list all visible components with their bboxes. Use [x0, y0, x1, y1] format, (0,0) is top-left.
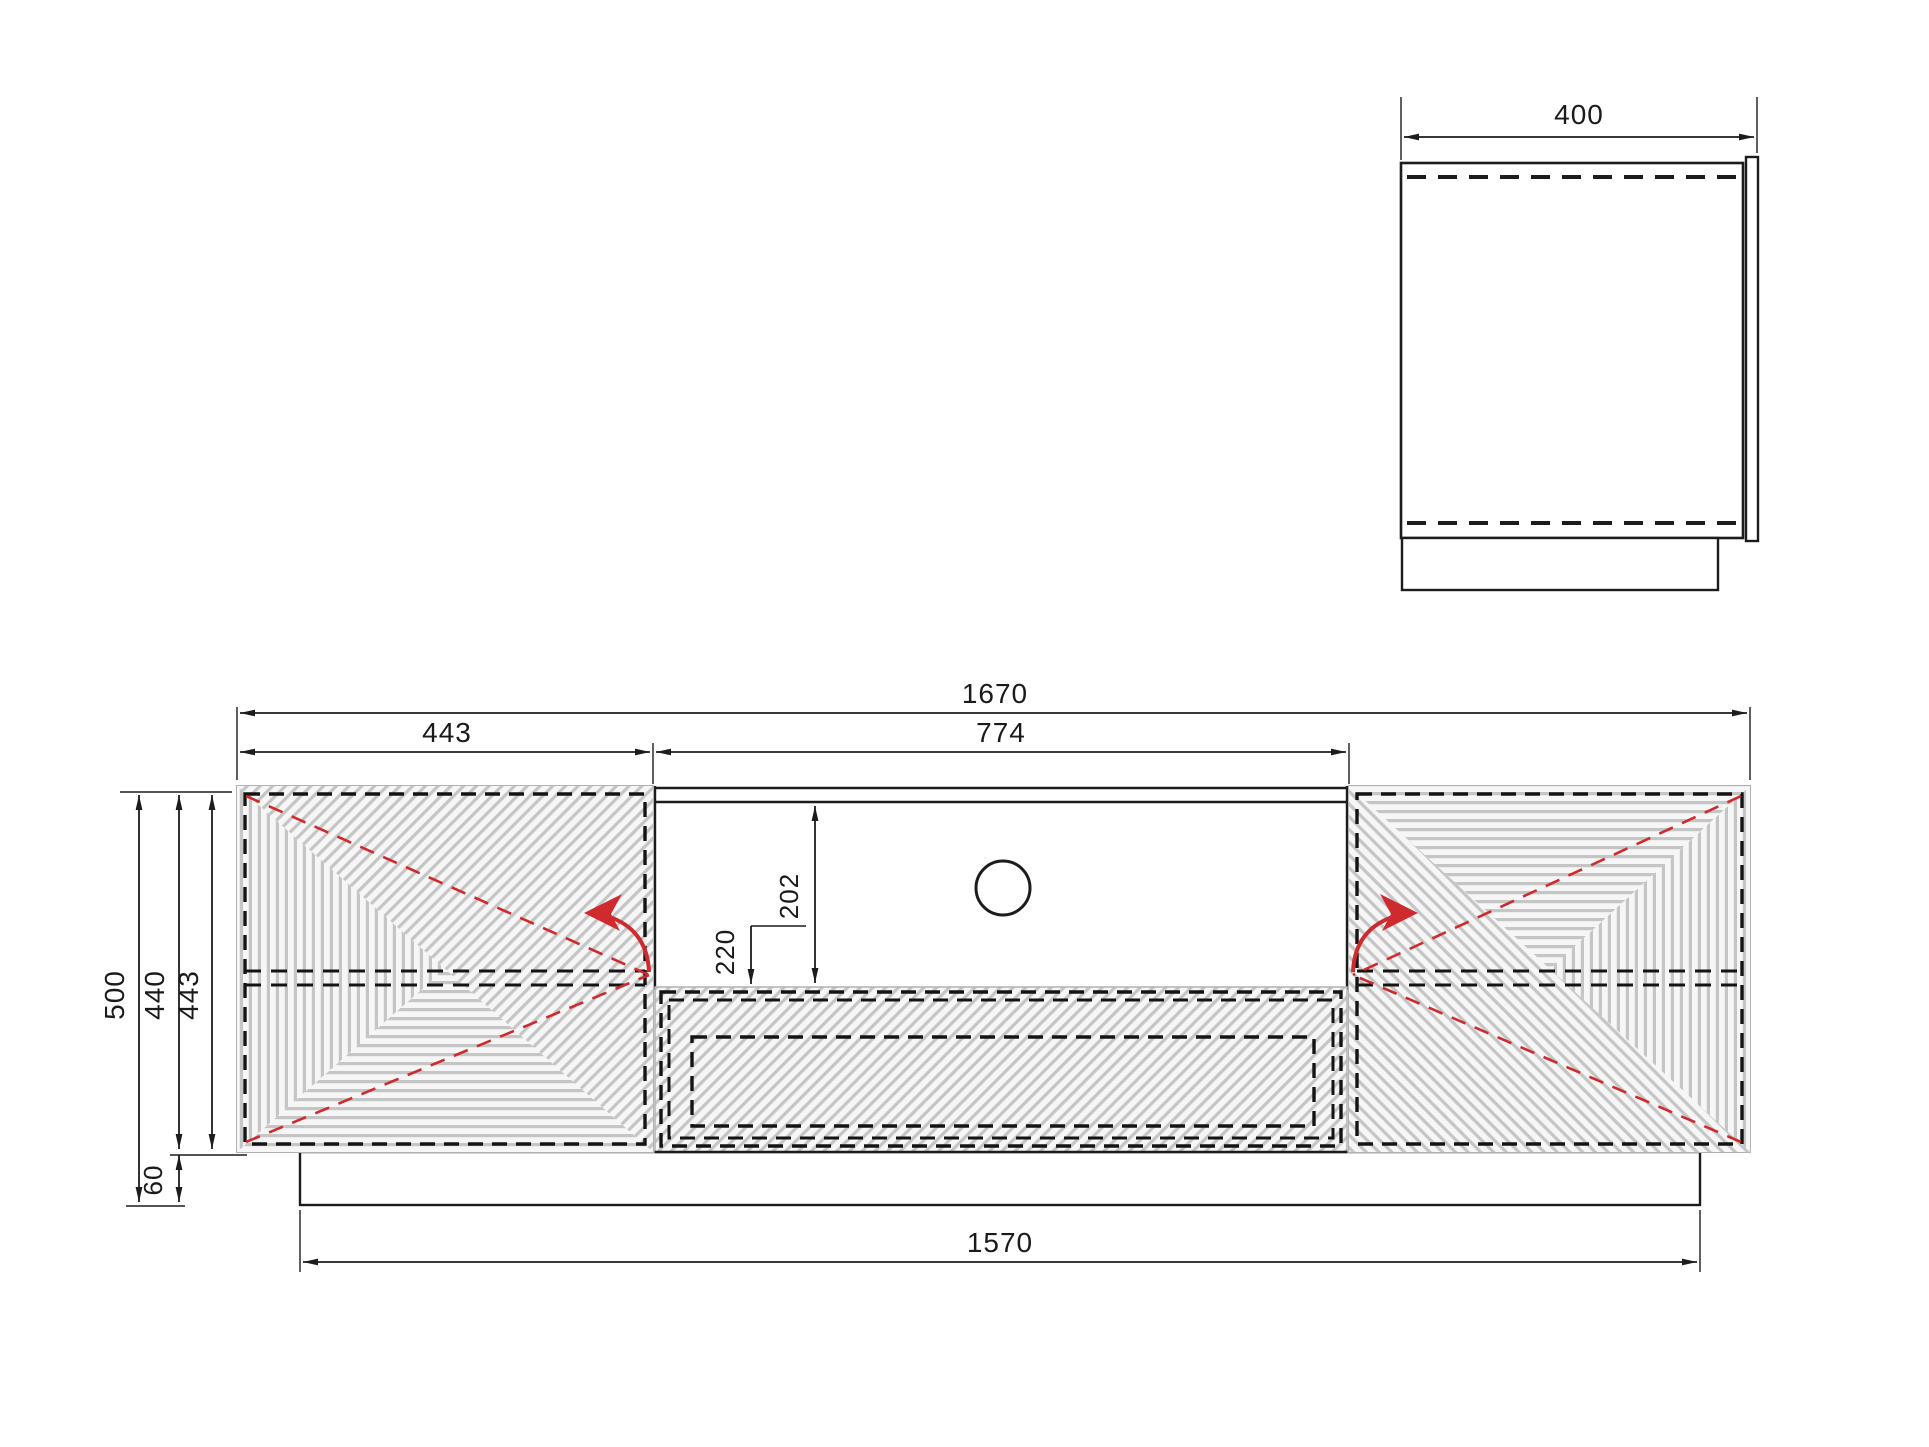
label-total-width: 1670	[962, 678, 1028, 709]
label-plinth-height: 60	[138, 1165, 168, 1196]
side-door-panel	[1746, 157, 1758, 541]
label-plinth-width: 1570	[967, 1227, 1033, 1258]
front-left-door	[237, 786, 653, 1152]
side-view	[1401, 97, 1758, 590]
label-bottom-offset: 220	[710, 929, 740, 975]
front-right-door	[1349, 786, 1750, 1152]
front-plinth	[300, 1152, 1700, 1205]
technical-drawing-canvas: 400	[0, 0, 1929, 1447]
label-door-height: 443	[173, 970, 204, 1020]
side-depth-label: 400	[1554, 99, 1604, 130]
label-niche-width: 774	[976, 717, 1026, 748]
label-carcass-height: 440	[139, 970, 170, 1020]
side-carcass-outline	[1401, 163, 1743, 538]
label-door-width: 443	[422, 717, 472, 748]
side-plinth	[1402, 538, 1718, 590]
label-niche-opening-height: 202	[774, 873, 804, 919]
label-total-height: 500	[99, 970, 130, 1020]
front-drawer	[655, 987, 1347, 1152]
